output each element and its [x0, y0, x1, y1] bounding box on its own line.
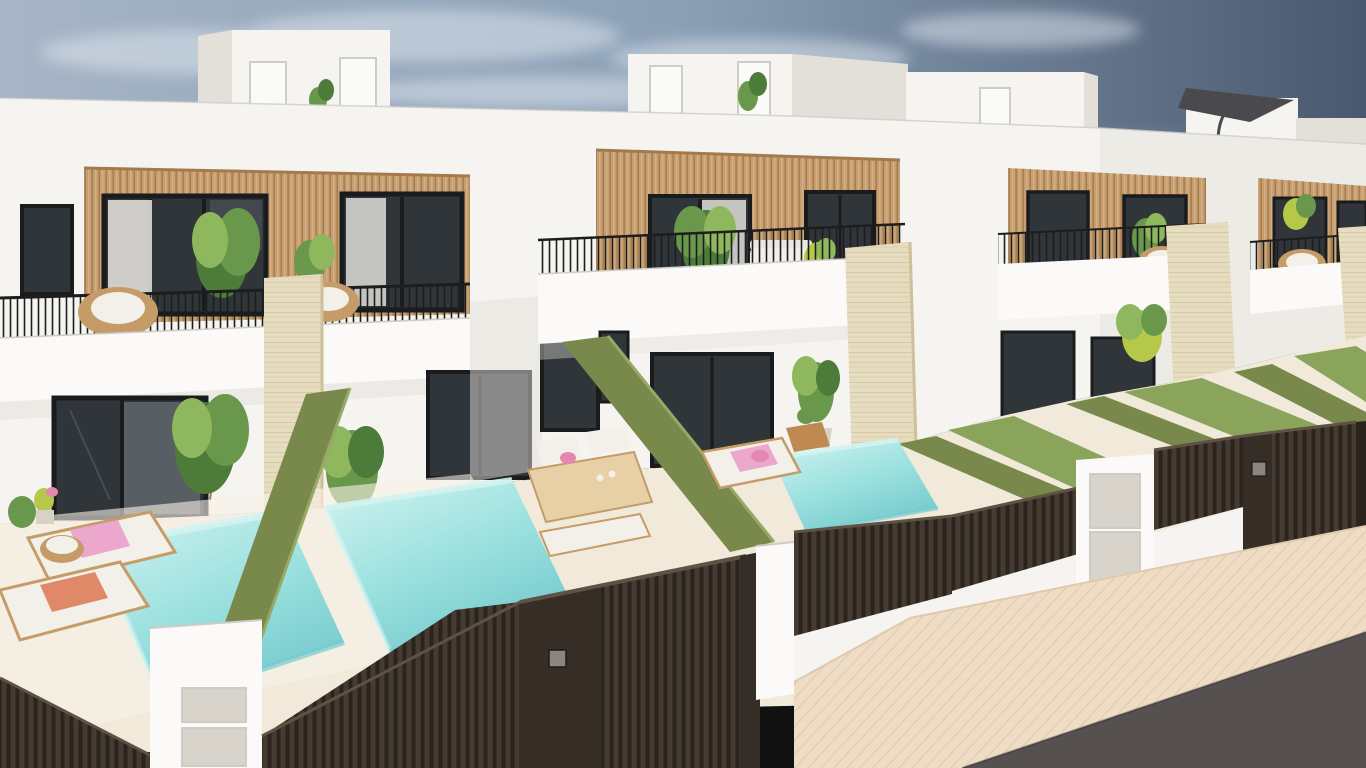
stool-plant — [797, 408, 815, 424]
gate-pillar-white — [756, 542, 794, 700]
mailbox-door — [182, 728, 246, 766]
travertine-pillar-2 — [845, 242, 916, 466]
flower-vase — [560, 452, 576, 464]
mailbox-door — [182, 688, 246, 722]
gate-lock — [1252, 462, 1266, 476]
gate-solid-panel — [520, 586, 600, 768]
candle — [609, 471, 616, 478]
render-canvas — [0, 0, 1366, 768]
round-pillow — [751, 450, 769, 462]
architectural-render — [0, 0, 1366, 768]
far-left-window — [22, 206, 72, 294]
wicker-side-table — [40, 535, 84, 563]
corridor-recess — [470, 296, 542, 482]
candle — [597, 475, 604, 482]
meter-door — [1090, 474, 1140, 528]
mailbox-pillar — [150, 620, 262, 768]
gate-slatted-panel — [600, 556, 746, 768]
gate-lock — [549, 650, 566, 667]
